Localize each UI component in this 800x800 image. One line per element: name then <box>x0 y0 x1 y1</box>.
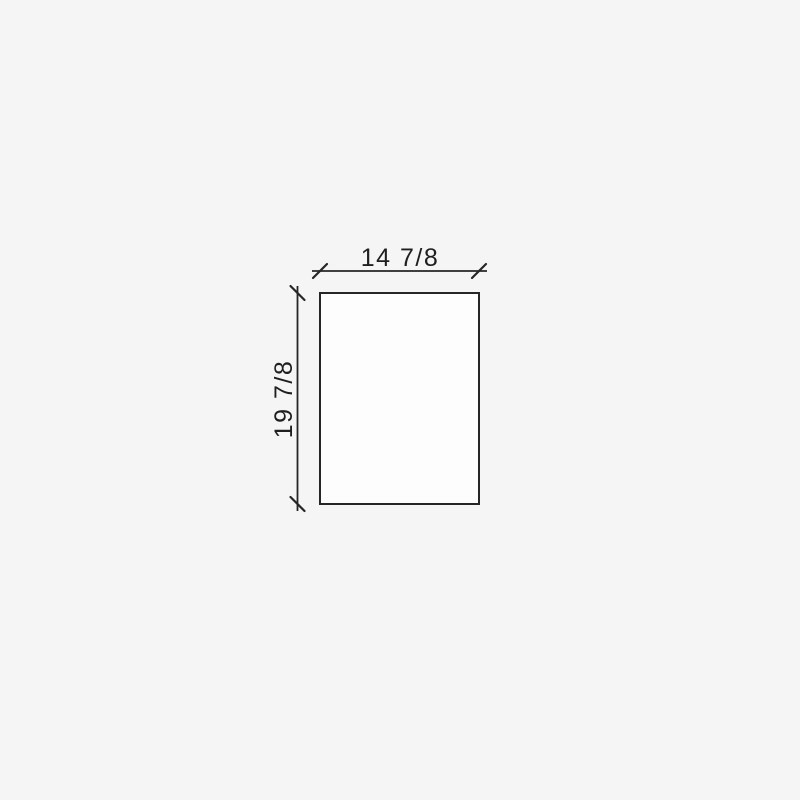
width-dimension-label: 14 7/8 <box>361 244 440 272</box>
width-dimension: 14 7/8 <box>312 244 487 278</box>
height-dimension-label: 19 7/8 <box>270 360 298 439</box>
dimensioned-drawing: 14 7/8 19 7/8 <box>0 0 800 800</box>
technical-drawing-canvas: 14 7/8 19 7/8 <box>0 0 800 800</box>
part-outline-rectangle <box>320 293 479 504</box>
height-dimension: 19 7/8 <box>270 286 305 511</box>
